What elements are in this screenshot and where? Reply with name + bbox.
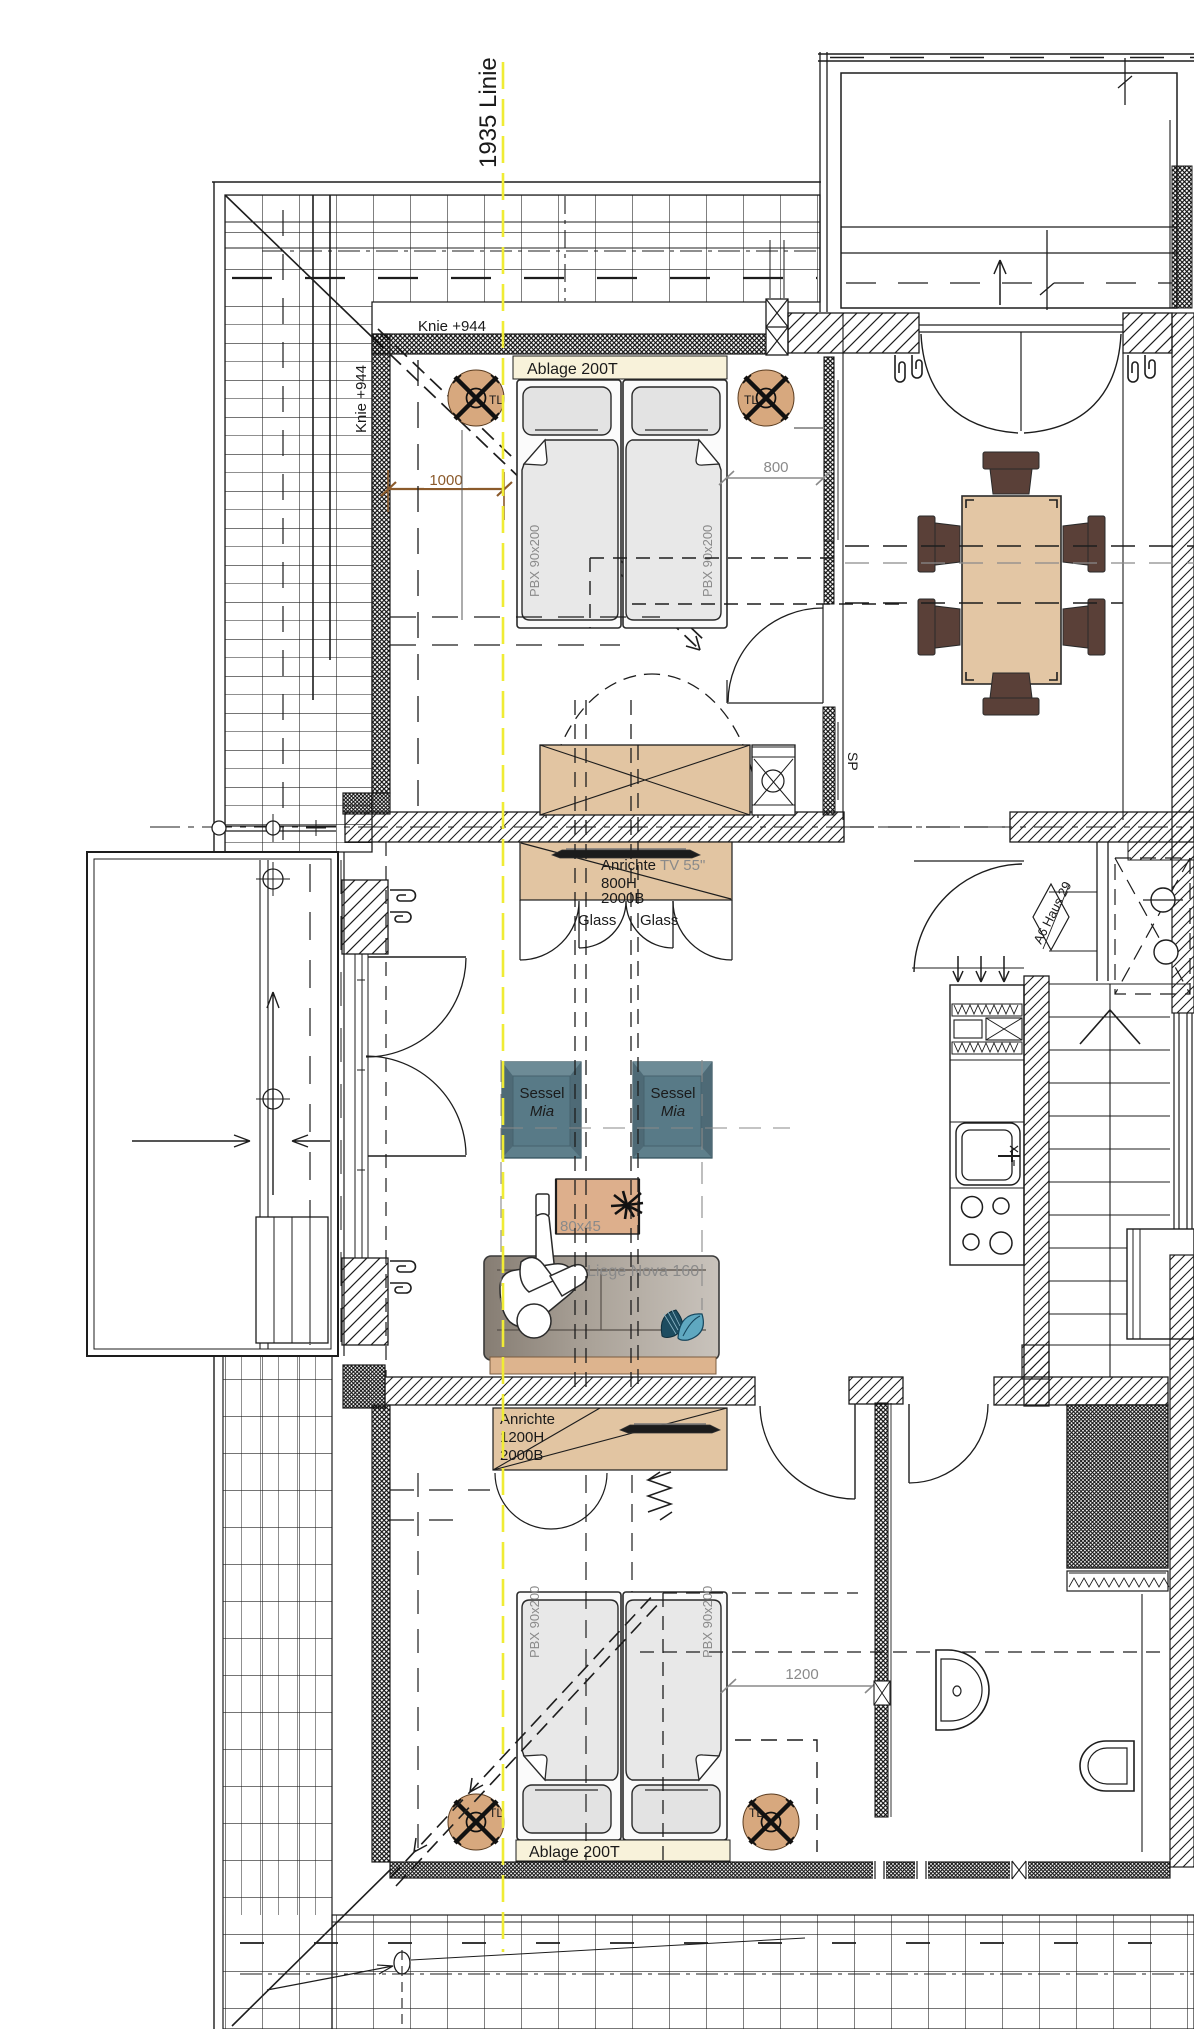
svg-text:1200: 1200: [785, 1666, 818, 1683]
svg-text:Mia: Mia: [530, 1103, 554, 1120]
svg-text:2000B: 2000B: [500, 1447, 543, 1464]
svg-text:TL: TL: [749, 1806, 763, 1820]
svg-text:Ablage 200T: Ablage 200T: [529, 1844, 620, 1861]
svg-text:Ablage 200T: Ablage 200T: [527, 361, 618, 378]
svg-text:SP: SP: [845, 752, 861, 771]
svg-text:1000: 1000: [429, 472, 462, 489]
svg-text:1935 Linie: 1935 Linie: [475, 57, 502, 168]
svg-text:Glass: Glass: [578, 912, 616, 929]
svg-text:TL: TL: [744, 393, 758, 407]
svg-text:TL: TL: [489, 1806, 503, 1820]
svg-text:80x45: 80x45: [560, 1218, 601, 1235]
svg-text:Knie +944: Knie +944: [353, 365, 370, 433]
svg-text:Anrichte: Anrichte: [500, 1411, 555, 1428]
svg-text:PBX 90x200: PBX 90x200: [527, 525, 542, 597]
svg-text:PBX 90x200: PBX 90x200: [700, 525, 715, 597]
svg-text:1200H: 1200H: [500, 1429, 544, 1446]
svg-text:TL: TL: [489, 393, 503, 407]
svg-text:Liege Nova 160: Liege Nova 160: [587, 1263, 699, 1280]
svg-text:PBX 90x200: PBX 90x200: [700, 1586, 715, 1658]
svg-text:Knie +944: Knie +944: [418, 318, 486, 335]
svg-text:Sessel: Sessel: [519, 1085, 564, 1102]
svg-text:PBX 90x200: PBX 90x200: [527, 1586, 542, 1658]
svg-text:Sessel: Sessel: [650, 1085, 695, 1102]
svg-text:Mia: Mia: [661, 1103, 685, 1120]
svg-text:Anrichte TV 55": Anrichte TV 55": [601, 857, 705, 874]
svg-text:800: 800: [763, 459, 788, 476]
